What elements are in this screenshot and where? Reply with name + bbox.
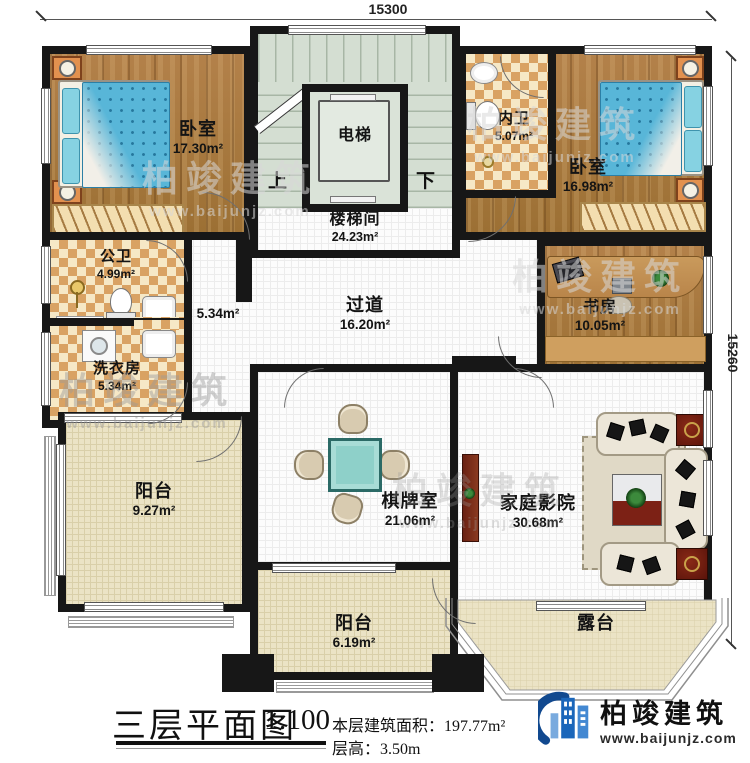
room-area: 5.07m² [478,129,550,144]
pillow [62,138,80,184]
dimension-line-top [40,19,712,20]
title-underline-thin [116,748,326,749]
plan-scale: 1:100 [264,704,330,737]
building-area-line: 本层建筑面积：197.77m² [332,712,505,736]
floor-drain-icon [482,156,494,168]
lamp-icon [682,182,699,199]
room-area: 5.34m² [190,306,246,323]
pillow [684,130,702,172]
elevator-door [330,196,376,203]
plant-icon [652,270,669,287]
room-label-study: 书房 10.05m² [552,298,648,335]
stair-treads [258,34,452,82]
pillow [62,88,80,134]
railing [68,616,234,628]
column-post [222,654,274,692]
pillow [684,86,702,128]
lamp-icon [59,60,76,77]
room-area: 17.30m² [146,141,250,158]
sink [470,62,498,84]
room-label-chess: 棋牌室 21.06m² [362,490,458,529]
building-area-label: 本层建筑面积： [332,718,444,735]
window [56,444,66,576]
room-label-terrace: 露台 [556,612,636,635]
nightstand [676,56,704,80]
decor-icon [684,556,700,572]
floor-height-value: 3.50m [380,741,420,758]
title-underline [116,741,326,745]
floor-plan-page: 15300 15260 卧室 17.30m² 电梯 上 下 楼梯间 24.23m… [0,0,750,763]
mahjong-table [328,438,382,492]
room-name: 过道 [328,294,402,317]
window [703,86,713,166]
plant-icon [626,488,646,508]
nightstand [676,178,704,202]
building-area-value: 197.77m² [444,718,505,735]
sink [142,330,176,358]
room-label-bedroom1: 卧室 17.30m² [146,118,250,157]
window [703,390,713,448]
room-label-elevator: 电梯 [310,126,400,146]
dimension-top-value: 15300 [313,1,463,17]
washing-machine [82,330,116,362]
plant-icon [464,488,475,499]
window [584,45,696,55]
window [288,25,426,35]
brand-logo-icon [538,690,596,752]
counter-opening [134,320,184,330]
room-label-home-theater: 家庭影院 30.68m² [484,492,592,531]
room-area: 24.23m² [300,230,410,246]
decor-icon [684,422,700,438]
window [41,332,51,406]
railing [276,682,434,693]
nightstand [52,56,82,80]
room-name: 内卫 [478,110,550,129]
side-table [676,548,708,580]
wardrobe [52,204,184,234]
monitor-icon [612,278,632,294]
brand-name: 柏竣建筑 [600,692,728,731]
room-label-inner-bath: 内卫 5.07m² [478,110,550,144]
stair-down-label: 下 [416,166,435,193]
room-area: 9.27m² [104,503,204,520]
room-name: 卧室 [146,118,250,141]
sofa [600,542,680,586]
room-name: 楼梯间 [300,210,410,230]
shower-stem [76,292,78,308]
window [86,45,212,55]
chair [338,404,368,434]
room-label-west-hall: 5.34m² [190,306,246,323]
window [703,256,713,334]
room-name: 书房 [552,298,648,318]
dimension-right-value: 15260 [725,313,741,393]
window [272,563,396,573]
wardrobe [580,202,706,232]
room-label-corridor: 过道 16.20m² [328,294,402,333]
sofa-pillow [629,419,647,437]
room-name: 阳台 [104,480,204,503]
window [41,246,51,304]
lamp-icon [682,60,699,77]
room-area: 16.20m² [328,317,402,334]
room-name: 棋牌室 [362,490,458,513]
cabinet-strip [545,336,706,362]
railing [44,436,56,596]
room-name: 电梯 [310,126,400,146]
chair [294,450,324,480]
window [41,88,51,164]
chair [380,450,410,480]
room-name: 露台 [556,612,636,635]
room-area: 10.05m² [552,318,648,335]
brand-logo: 柏竣建筑 www.baijunjz.com [536,686,742,758]
room-area: 30.68m² [484,515,592,532]
sofa-pillow [679,491,696,508]
room-label-balcony-west: 阳台 9.27m² [104,480,204,519]
room-name: 洗衣房 [62,360,172,379]
column-post [432,654,484,692]
floor-height-label: 层高： [332,741,380,758]
elevator-door [330,94,376,101]
washer-door-icon [90,337,108,355]
stair-up-label: 上 [268,166,287,193]
room-area: 21.06m² [362,513,458,530]
window [703,460,713,536]
floor-height-line: 层高：3.50m [332,735,420,759]
room-label-stairwell: 楼梯间 24.23m² [300,210,410,246]
brand-url: www.baijunjz.com [600,730,737,746]
toilet [110,288,132,315]
room-name: 家庭影院 [484,492,592,515]
room-label-balcony-south: 阳台 6.19m² [304,612,404,651]
room-name: 阳台 [304,612,404,635]
room-area: 6.19m² [304,635,404,652]
window [84,602,224,612]
window [536,601,646,611]
wall-stub [236,240,252,302]
